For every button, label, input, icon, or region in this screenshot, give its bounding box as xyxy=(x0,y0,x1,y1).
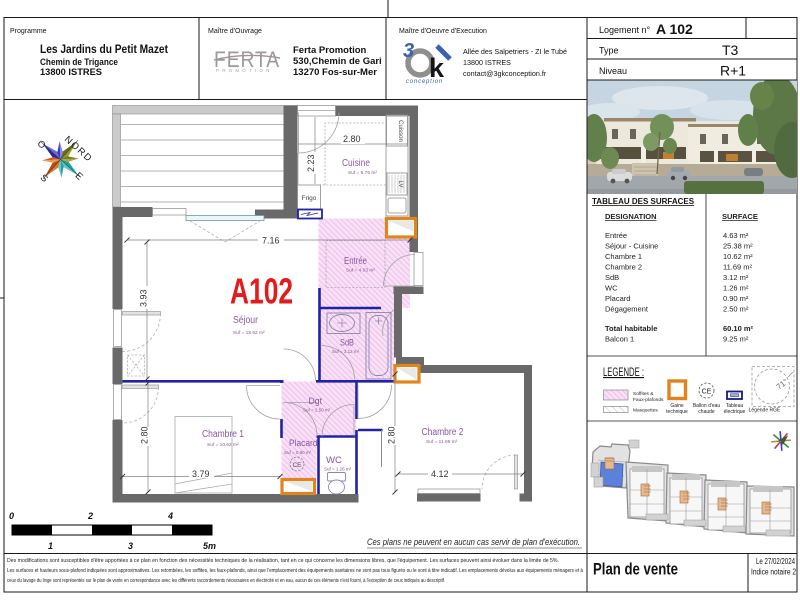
svg-text:9.25 m²: 9.25 m² xyxy=(723,335,749,344)
svg-text:Maître d'Oeuvre d'Execution: Maître d'Oeuvre d'Execution xyxy=(399,28,487,35)
svg-text:technique: technique xyxy=(666,409,688,415)
svg-text:PROMOTION: PROMOTION xyxy=(216,68,273,73)
svg-text:2.80: 2.80 xyxy=(140,426,150,444)
svg-text:A 102: A 102 xyxy=(656,21,693,37)
svg-text:Programme: Programme xyxy=(10,28,47,35)
svg-text:Les Jardins du Petit Mazet: Les Jardins du Petit Mazet xyxy=(40,44,168,56)
svg-text:S: S xyxy=(38,172,50,184)
svg-text:R+1: R+1 xyxy=(720,63,746,79)
svg-text:WC: WC xyxy=(326,455,343,465)
svg-text:Le 27/02/2024: Le 27/02/2024 xyxy=(756,557,795,566)
svg-text:7.16: 7.16 xyxy=(262,236,280,246)
svg-text:13800 ISTRES: 13800 ISTRES xyxy=(463,58,511,67)
svg-text:DESIGNATION: DESIGNATION xyxy=(605,212,657,221)
svg-text:Type: Type xyxy=(599,46,619,56)
svg-text:électrique: électrique xyxy=(724,409,746,415)
svg-text:Masquettes: Masquettes xyxy=(633,408,658,414)
svg-text:Séjour: Séjour xyxy=(233,315,259,326)
svg-text:TABLEAU DES SURFACES: TABLEAU DES SURFACES xyxy=(592,197,695,206)
svg-text:3: 3 xyxy=(128,541,133,551)
svg-text:Placard: Placard xyxy=(289,438,318,448)
svg-text:conception: conception xyxy=(406,79,443,85)
svg-text:WC: WC xyxy=(605,284,618,293)
svg-text:2: 2 xyxy=(87,511,93,521)
svg-text:CE: CE xyxy=(702,389,712,396)
svg-text:Logement n°: Logement n° xyxy=(599,25,651,35)
svg-text:Chambre 2: Chambre 2 xyxy=(605,263,642,272)
svg-text:3.79: 3.79 xyxy=(192,469,210,479)
svg-text:Total habitable: Total habitable xyxy=(605,324,657,333)
svg-text:SdB: SdB xyxy=(340,338,354,348)
svg-text:Suf = 4.63 m²: Suf = 4.63 m² xyxy=(346,268,375,274)
svg-text:Plan de vente: Plan de vente xyxy=(593,560,678,579)
svg-text:530,Chemin de Gari: 530,Chemin de Gari xyxy=(293,56,382,67)
svg-text:Suf = 3.12 m²: Suf = 3.12 m² xyxy=(332,349,360,354)
svg-text:2.80: 2.80 xyxy=(343,134,361,144)
svg-text:Suf = 10.62 m²: Suf = 10.62 m² xyxy=(207,442,239,448)
svg-text:Placard: Placard xyxy=(605,294,630,303)
svg-text:O: O xyxy=(35,138,48,151)
svg-text:Dégagement: Dégagement xyxy=(605,305,649,314)
svg-text:SdB: SdB xyxy=(605,273,619,282)
svg-text:Suf = 11.69 m²: Suf = 11.69 m² xyxy=(426,439,458,445)
svg-text:10.62 m²: 10.62 m² xyxy=(723,252,753,261)
svg-text:60.10 m²: 60.10 m² xyxy=(723,324,754,333)
svg-text:Chambre 1: Chambre 1 xyxy=(202,429,244,440)
svg-text:Les surfaces et hauteurs sous-: Les surfaces et hauteurs sous-plafond in… xyxy=(7,568,583,574)
svg-text:Séjour - Cuisine: Séjour - Cuisine xyxy=(605,242,658,251)
svg-text:Cuisine: Cuisine xyxy=(342,158,370,169)
svg-text:25.38 m²: 25.38 m² xyxy=(723,242,753,251)
svg-text:Suf = 18.62 m²: Suf = 18.62 m² xyxy=(233,330,265,336)
svg-text:Entrée: Entrée xyxy=(605,231,627,240)
svg-text:4: 4 xyxy=(167,511,173,521)
svg-text:Frigo: Frigo xyxy=(302,195,317,202)
svg-text:ceux du lavage du linge sont r: ceux du lavage du linge sont représentés… xyxy=(7,578,445,584)
svg-text:3: 3 xyxy=(403,40,414,62)
svg-text:Indice notaire 2: Indice notaire 2 xyxy=(751,568,796,577)
svg-text:Chambre 2: Chambre 2 xyxy=(422,427,464,438)
svg-text:1.26 m²: 1.26 m² xyxy=(723,284,749,293)
svg-text:Maître d'Ouvrage: Maître d'Ouvrage xyxy=(208,28,262,35)
svg-text:3.93: 3.93 xyxy=(139,289,149,307)
svg-text:1: 1 xyxy=(48,541,53,551)
svg-text:Suf = 2.50 m²: Suf = 2.50 m² xyxy=(303,408,331,413)
svg-text:chaude: chaude xyxy=(698,409,715,415)
svg-text:Faux-plafonds: Faux-plafonds xyxy=(633,397,664,403)
svg-text:0.90 m²: 0.90 m² xyxy=(723,294,749,303)
svg-text:2.23: 2.23 xyxy=(306,154,316,172)
svg-text:contact@3gkconception.fr: contact@3gkconception.fr xyxy=(463,69,547,78)
svg-text:Niveau: Niveau xyxy=(599,66,627,76)
svg-text:Légende RGE: Légende RGE xyxy=(749,408,781,414)
svg-text:LEGENDE :: LEGENDE : xyxy=(603,367,644,379)
svg-text:CE: CE xyxy=(292,462,302,469)
svg-text:Chambre 1: Chambre 1 xyxy=(605,252,642,261)
svg-text:13800 ISTRES: 13800 ISTRES xyxy=(40,67,102,78)
svg-text:Entrée: Entrée xyxy=(344,256,367,267)
svg-text:LV: LV xyxy=(397,181,403,188)
svg-text:4.12: 4.12 xyxy=(431,469,449,479)
svg-text:13270 Fos-sur-Mer: 13270 Fos-sur-Mer xyxy=(293,67,377,78)
svg-text:Allée des Salpetriers - ZI le: Allée des Salpetriers - ZI le Tubé xyxy=(463,47,567,56)
svg-text:Soffites &: Soffites & xyxy=(633,391,654,397)
svg-text:4.63 m²: 4.63 m² xyxy=(723,231,749,240)
svg-text:Dgt: Dgt xyxy=(309,396,323,406)
svg-text:Suf = 0.90 m²: Suf = 0.90 m² xyxy=(284,450,312,455)
svg-text:Balcon 1: Balcon 1 xyxy=(605,335,634,344)
svg-text:11.69 m²: 11.69 m² xyxy=(723,263,753,272)
svg-text:Suf = 6.76 m²: Suf = 6.76 m² xyxy=(348,170,377,176)
svg-text:A102: A102 xyxy=(230,271,293,312)
svg-text:3.12 m²: 3.12 m² xyxy=(723,273,749,282)
svg-text:2.80: 2.80 xyxy=(387,426,397,444)
svg-text:T3: T3 xyxy=(722,42,739,58)
svg-text:5m: 5m xyxy=(203,541,216,551)
svg-text:0: 0 xyxy=(9,511,14,521)
svg-text:Suf = 1.26 m²: Suf = 1.26 m² xyxy=(324,467,352,472)
svg-text:Cuisson: Cuisson xyxy=(397,120,403,142)
svg-text:2.50 m²: 2.50 m² xyxy=(723,305,749,314)
svg-text:Des modifications sont suscept: Des modifications sont susceptibles d'êt… xyxy=(7,558,559,564)
svg-text:Ferta Promotion: Ferta Promotion xyxy=(293,45,367,56)
svg-text:SURFACE: SURFACE xyxy=(722,212,758,221)
svg-text:Ces plans ne peuvent en aucun: Ces plans ne peuvent en aucun cas servir… xyxy=(367,537,580,548)
